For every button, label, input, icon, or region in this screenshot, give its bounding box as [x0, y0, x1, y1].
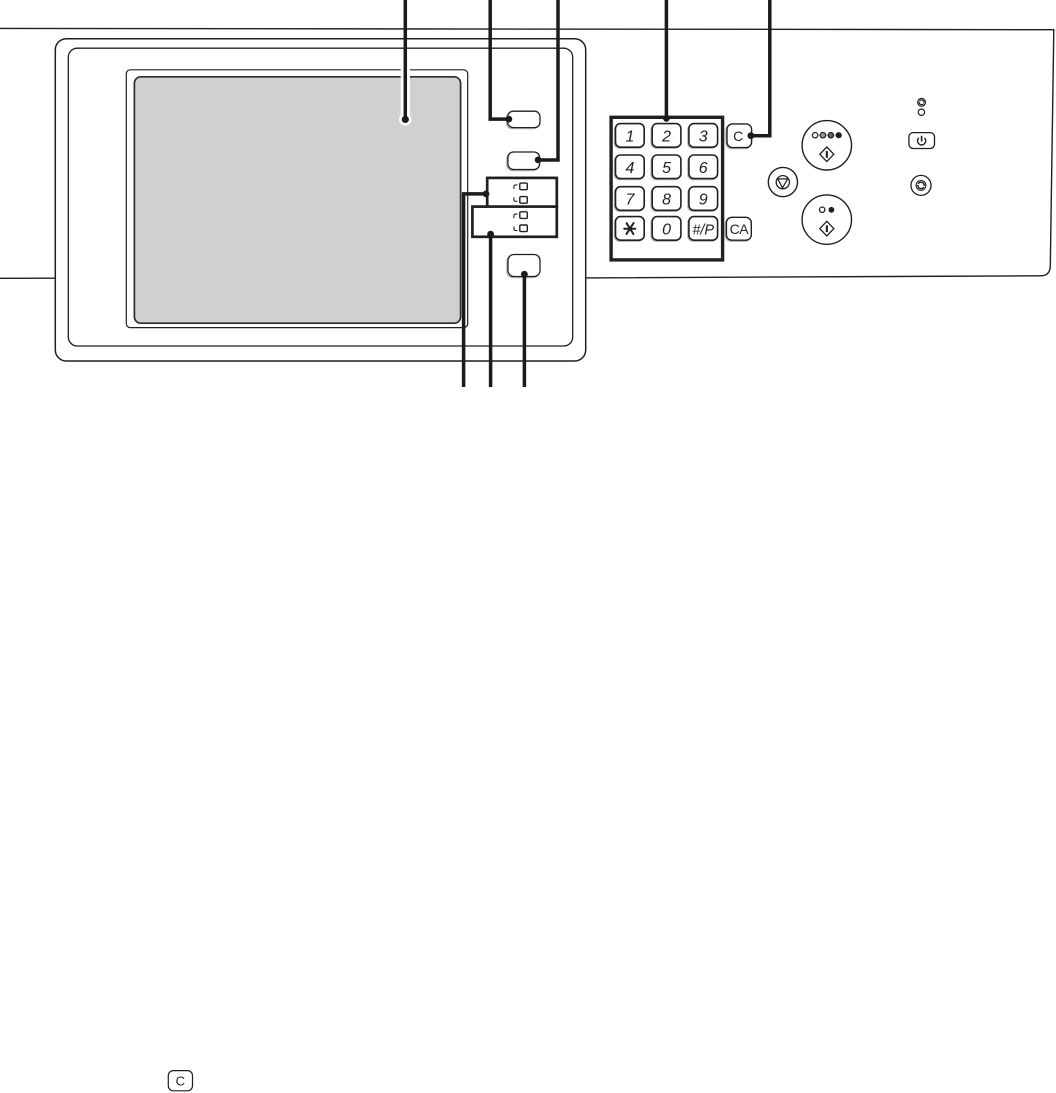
svg-text:0: 0 — [662, 222, 671, 239]
svg-text:#/P: #/P — [692, 223, 714, 239]
svg-text:2: 2 — [661, 129, 671, 146]
svg-text:6: 6 — [699, 160, 708, 177]
svg-text:C: C — [733, 128, 743, 144]
svg-text:9: 9 — [699, 192, 708, 209]
svg-text:CA: CA — [730, 221, 750, 237]
svg-text:5: 5 — [662, 160, 671, 177]
svg-text:8: 8 — [662, 192, 671, 209]
svg-text:3: 3 — [699, 129, 708, 146]
svg-text:1: 1 — [625, 129, 634, 146]
svg-text:4: 4 — [625, 160, 634, 177]
svg-text:7: 7 — [625, 192, 635, 209]
svg-text:C: C — [176, 1073, 185, 1088]
